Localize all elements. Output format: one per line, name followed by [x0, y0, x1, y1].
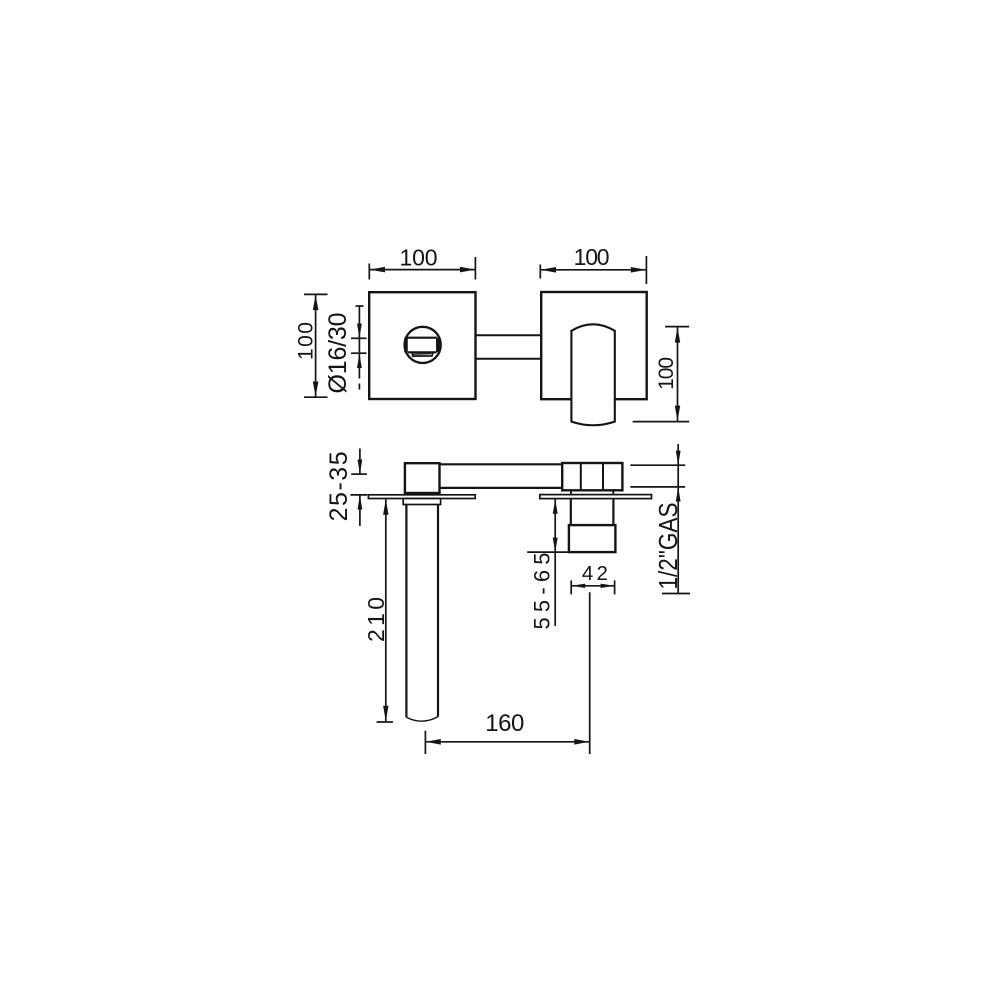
- svg-text:100: 100: [400, 245, 438, 271]
- svg-text:Ø16/30: Ø16/30: [324, 313, 352, 394]
- svg-text:160: 160: [485, 710, 524, 737]
- svg-text:100: 100: [574, 244, 610, 270]
- svg-text:25-35: 25-35: [325, 451, 353, 521]
- svg-text:55-65: 55-65: [530, 553, 555, 630]
- svg-text:1/2"GAS: 1/2"GAS: [653, 503, 683, 590]
- svg-text:210: 210: [363, 597, 389, 642]
- svg-text:100: 100: [655, 357, 678, 390]
- svg-text:100: 100: [294, 322, 317, 360]
- svg-text:42: 42: [582, 562, 608, 585]
